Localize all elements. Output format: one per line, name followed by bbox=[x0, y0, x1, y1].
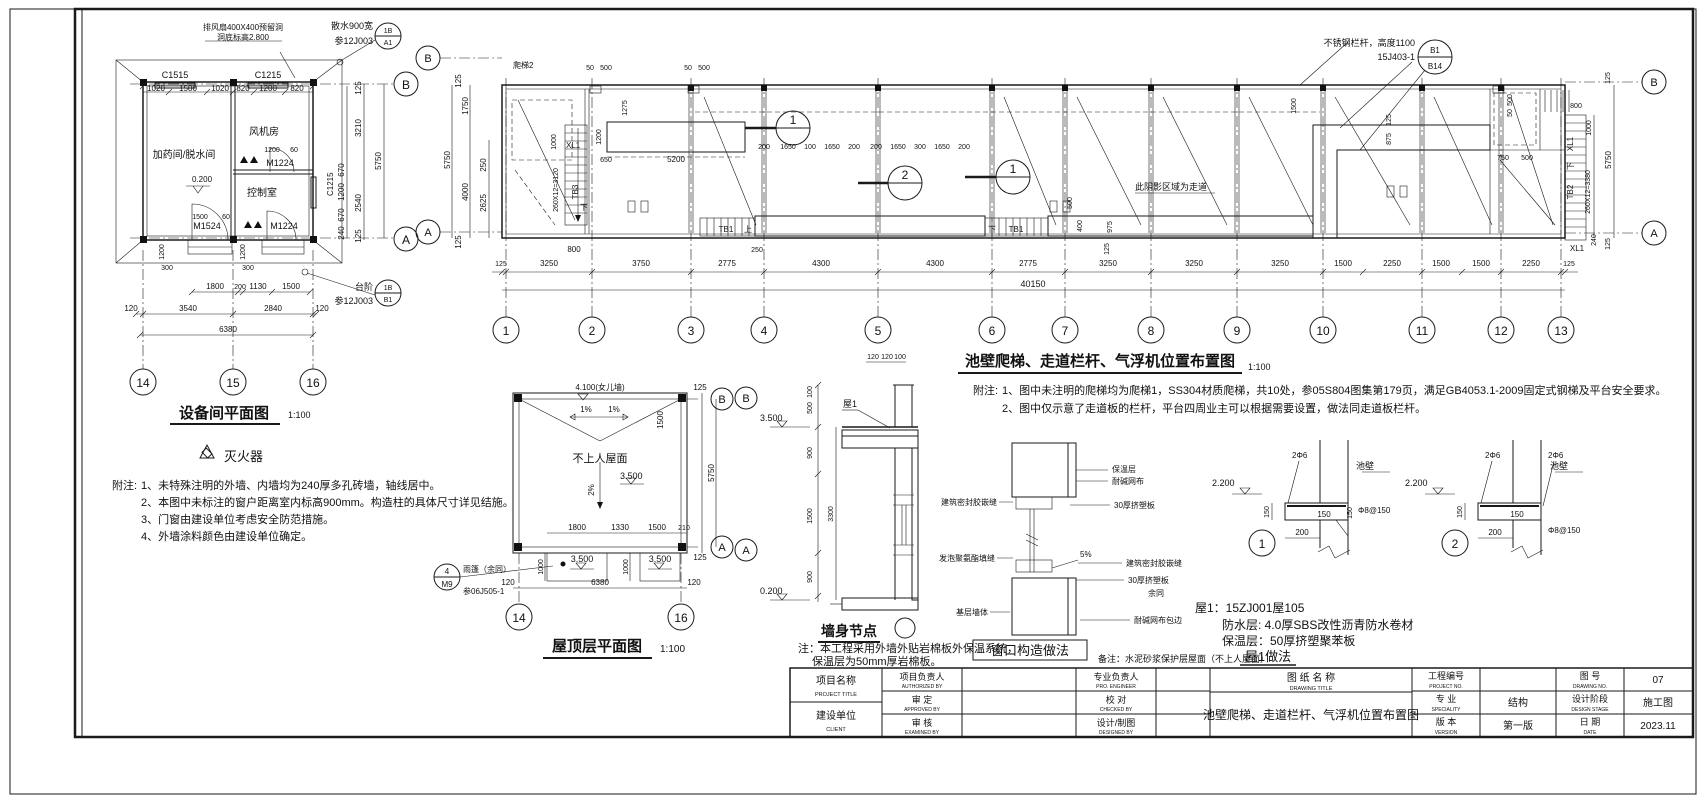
dim: 125 bbox=[354, 229, 363, 243]
part-label: 池壁 bbox=[1550, 460, 1568, 471]
dim: 125 bbox=[454, 235, 463, 249]
elev-label: 0.200 bbox=[760, 586, 783, 596]
detail-marker: 1 bbox=[790, 113, 797, 127]
detail-ref: 4 bbox=[445, 567, 450, 576]
callout: 15J403-1 bbox=[1377, 52, 1415, 62]
dim: 1275 bbox=[622, 100, 629, 116]
room-label: 控制室 bbox=[247, 186, 277, 199]
tb-label: 建设单位 bbox=[816, 709, 856, 722]
tb-value: 结构 bbox=[1508, 696, 1528, 709]
stair-label: XL1 bbox=[1566, 136, 1575, 151]
layer-tag: 屋1 bbox=[843, 399, 857, 409]
elev-label: 3.500 bbox=[760, 413, 783, 423]
dim: 1650 bbox=[780, 144, 796, 151]
view-title: 屋顶层平面图 bbox=[552, 638, 642, 655]
stair-label: 爬梯2 bbox=[513, 60, 534, 70]
tb-label: 设计阶段 bbox=[1572, 693, 1608, 704]
dim: 125 bbox=[1563, 261, 1575, 268]
dim: 650 bbox=[600, 157, 612, 164]
tb-label-en: DESIGNED BY bbox=[1099, 730, 1134, 736]
dim: 1200 bbox=[159, 244, 166, 260]
dim: 240 bbox=[1591, 234, 1598, 246]
window-tag: C1515 bbox=[162, 70, 189, 80]
stair-label: TB1 bbox=[719, 225, 734, 234]
dim: 3210 bbox=[354, 119, 363, 137]
tb-label-en: AUTHORIZED BY bbox=[902, 684, 943, 690]
dim: 1500 bbox=[1472, 259, 1490, 268]
dim: 300 bbox=[914, 144, 926, 151]
dim: 1500 bbox=[1432, 259, 1450, 268]
grid-bubble: 2 bbox=[589, 324, 596, 338]
detail-1: 2.200 2Φ6 池壁 150 150 150 Φ8@150 200 1 bbox=[1212, 440, 1391, 558]
dim: 1000 bbox=[623, 559, 630, 575]
callout: 洞底标高2.800 bbox=[217, 32, 270, 42]
dim: 50 bbox=[684, 65, 692, 72]
dim: 210 bbox=[678, 525, 690, 532]
layer-label: 基层墙体 bbox=[956, 607, 988, 617]
detail-ref: A1 bbox=[384, 40, 393, 47]
door-tag: M1224 bbox=[270, 221, 298, 231]
view-title: 设备间平面图 bbox=[179, 404, 269, 422]
detail-ref: 1B bbox=[384, 28, 393, 35]
dim: 125 bbox=[1605, 72, 1612, 84]
room-label: 风机房 bbox=[249, 125, 279, 138]
note-line: 注：本工程采用外墙外贴岩棉板外保温系统， bbox=[798, 641, 1018, 655]
detail-ref: B1 bbox=[384, 297, 393, 304]
dim: 500 bbox=[1507, 94, 1514, 106]
rebar-label: 2Φ6 bbox=[1292, 451, 1308, 460]
tb-label-en: PRO. ENGINEER bbox=[1096, 684, 1136, 690]
legend-label: 灭火器 bbox=[224, 449, 263, 464]
grid-bubble: 16 bbox=[306, 376, 320, 390]
dim: 1650 bbox=[890, 144, 906, 151]
rebar-label: Φ8@150 bbox=[1358, 506, 1391, 515]
tb-drawing-title: 池壁爬梯、走道栏杆、气浮机位置布置图 bbox=[1203, 707, 1419, 722]
detail-2: 2.200 2Φ6 2Φ6 池壁 150 150 Φ8@150 200 2 bbox=[1405, 440, 1583, 558]
grid-bubble: 13 bbox=[1554, 324, 1568, 338]
dim: 3540 bbox=[179, 304, 197, 313]
dim: 1500 bbox=[1291, 98, 1298, 114]
tb-label-en: APPROVED BY bbox=[904, 707, 941, 713]
tb-label-en: SPECIALITY bbox=[1432, 707, 1462, 713]
roof-label: 不上人屋面 bbox=[573, 452, 628, 465]
dim: 260X12=3380 bbox=[1585, 170, 1592, 214]
stair-label: XL1 bbox=[1570, 244, 1585, 253]
dim: 750 bbox=[1497, 155, 1509, 162]
roof1-spec: 屋1：15ZJ001屋105 防水层: 4.0厚SBS改性沥青防水卷材 保温层：… bbox=[1098, 601, 1413, 665]
view-title: 池壁爬梯、走道栏杆、气浮机位置布置图 bbox=[965, 352, 1235, 370]
grid-bubble: B bbox=[742, 393, 749, 405]
note-line: 保温层为50mm厚岩棉板。 bbox=[812, 654, 942, 668]
detail-ref: B14 bbox=[1428, 62, 1443, 71]
grid-bubble: A bbox=[742, 545, 750, 557]
dim: 150 bbox=[1457, 506, 1464, 518]
rebar-label: Φ8@150 bbox=[1548, 526, 1581, 535]
note-line: 2、本图中未标注的窗户距离室内标高900mm。构造柱的具体尺寸详见结施。 bbox=[141, 495, 514, 509]
elev-label: 2.200 bbox=[1405, 478, 1428, 488]
layer-label: 发泡聚氨酯填缝 bbox=[939, 553, 995, 563]
dim: 975 bbox=[1107, 221, 1114, 233]
slope-label: 5% bbox=[1080, 550, 1092, 559]
layer-label: 余同 bbox=[1148, 588, 1164, 598]
dim: 2775 bbox=[1019, 259, 1037, 268]
note-line: 1、图中未注明的爬梯均为爬梯1，SS304材质爬梯，共10处，参05S804图集… bbox=[1002, 383, 1666, 397]
stair-label: XL1 bbox=[566, 141, 581, 150]
dim: 120 bbox=[501, 578, 515, 587]
dim: 6380 bbox=[219, 325, 237, 334]
dim: 6380 bbox=[591, 578, 609, 587]
grid-bubble: B bbox=[718, 394, 725, 406]
dim: 150 bbox=[1317, 510, 1331, 519]
dim: 200 bbox=[234, 284, 246, 291]
tb-value: 2023.11 bbox=[1640, 721, 1676, 732]
detail-marker: 1 bbox=[1010, 162, 1017, 176]
tb-value: 第一版 bbox=[1503, 719, 1533, 732]
tb-label: 日 期 bbox=[1580, 717, 1601, 727]
tb-value: 07 bbox=[1652, 675, 1664, 686]
dim: 125 bbox=[1605, 238, 1612, 250]
elev-label: 3.500 bbox=[620, 471, 643, 481]
spec-remark: 备注：水泥砂浆保护层屋面（不上人屋面） bbox=[1098, 653, 1269, 664]
elev-label: 2.200 bbox=[1212, 478, 1235, 488]
dim: 1000 bbox=[538, 559, 545, 575]
dim: 100 bbox=[804, 144, 816, 151]
dim: 50 bbox=[1507, 109, 1514, 117]
grid-bubble: 8 bbox=[1148, 324, 1155, 338]
view-scale: 1:100 bbox=[1248, 362, 1271, 372]
dim: 1200 bbox=[259, 84, 277, 93]
window-detail bbox=[973, 443, 1130, 660]
detail-ref: 1B bbox=[384, 285, 393, 292]
callout: 参06J505-1 bbox=[463, 586, 505, 596]
grid-bubble: 6 bbox=[989, 324, 996, 338]
dim: 250 bbox=[479, 158, 488, 172]
grid-bubble: A bbox=[402, 233, 410, 247]
dim: 50 bbox=[586, 65, 594, 72]
dim-total: 40150 bbox=[1020, 279, 1045, 289]
window-tag: C1215 bbox=[326, 172, 335, 196]
dim: 1500 bbox=[179, 84, 197, 93]
drawing-sheet: C1515 C1215 C1215 加药间/脱水间 风机房 控制室 M1224 … bbox=[0, 0, 1706, 803]
dim: 150 bbox=[1347, 507, 1354, 519]
dim: 1500 bbox=[282, 282, 300, 291]
tb-label: 项目负责人 bbox=[899, 671, 944, 682]
dim: 3750 bbox=[632, 259, 650, 268]
grid-bubble: 9 bbox=[1234, 324, 1241, 338]
dim: 125 bbox=[1104, 243, 1111, 255]
stair-label: 上 bbox=[744, 225, 752, 234]
dim: 3250 bbox=[1099, 259, 1117, 268]
rebar-label: 2Φ6 bbox=[1485, 451, 1501, 460]
note-line: 3、门窗由建设单位考虑安全防范措施。 bbox=[141, 512, 334, 526]
wall-section-detail bbox=[735, 362, 918, 638]
dim: 125 bbox=[354, 81, 363, 95]
grid-bubble: A bbox=[1650, 228, 1658, 240]
tb-label-en: PROJECT NO. bbox=[1429, 684, 1463, 690]
dim: 4000 bbox=[461, 183, 470, 201]
dim: 300 bbox=[161, 265, 173, 272]
tb-label-en: DRAWING TITLE bbox=[1290, 686, 1333, 692]
detail-ref: M9 bbox=[441, 580, 453, 589]
grid-bubble: 12 bbox=[1494, 324, 1508, 338]
detail-number: 2 bbox=[1452, 537, 1459, 551]
elev-label: 3.500 bbox=[649, 554, 672, 564]
dim: 2840 bbox=[264, 304, 282, 313]
dim: 125 bbox=[495, 261, 507, 268]
tb-label-en: CHECKED BY bbox=[1100, 707, 1133, 713]
window-tag: C1215 bbox=[255, 70, 282, 80]
door-tag: M1224 bbox=[266, 158, 294, 168]
dim: 1330 bbox=[611, 523, 629, 532]
dim: 120 bbox=[124, 304, 138, 313]
dim: 2625 bbox=[479, 194, 488, 212]
wall-section-text: B A 3.500 0.200 100 500 900 1500 900 330… bbox=[742, 354, 1018, 668]
dim: 500 bbox=[698, 65, 710, 72]
layer-label: 建筑密封胶嵌缝 bbox=[1126, 558, 1182, 568]
callout: 参12J003 bbox=[334, 35, 373, 46]
elev-label: 3.500 bbox=[571, 554, 594, 564]
view-scale: 1:100 bbox=[660, 644, 685, 655]
layer-label: 30厚挤塑板 bbox=[1114, 500, 1155, 510]
dim: 5750 bbox=[443, 151, 452, 169]
pool-layout-text: 1 2 3 4 5 6 7 8 9 10 11 12 13 B A B A 12… bbox=[424, 37, 1666, 415]
notes-label: 附注: bbox=[973, 383, 998, 397]
tb-label: 专业负责人 bbox=[1093, 671, 1138, 682]
grid-bubble: 14 bbox=[512, 611, 526, 625]
tb-label-en: CLIENT bbox=[826, 727, 846, 733]
grid-bubble: 5 bbox=[875, 324, 882, 338]
tb-label: 图 纸 名 称 bbox=[1287, 671, 1335, 684]
dim: 500 bbox=[600, 65, 612, 72]
dim: 120 bbox=[881, 354, 893, 361]
dim: 4300 bbox=[926, 259, 944, 268]
tb-label-en: EXAMINED BY bbox=[905, 730, 940, 736]
tb-value: 施工图 bbox=[1643, 696, 1673, 709]
part-label: 池壁 bbox=[1356, 460, 1374, 471]
dim: 5750 bbox=[707, 464, 716, 482]
grid-bubble: 14 bbox=[136, 376, 150, 390]
dim: 3300 bbox=[828, 506, 835, 522]
dim: 1020 bbox=[147, 84, 165, 93]
tb-label-en: PROJECT TITLE bbox=[815, 692, 857, 698]
callout: 散水900宽 bbox=[331, 20, 373, 31]
dim: 5750 bbox=[1604, 151, 1613, 169]
dim: 120 bbox=[687, 578, 701, 587]
dim: 1800 bbox=[206, 282, 224, 291]
dim: 1650 bbox=[824, 144, 840, 151]
dim: 2250 bbox=[1522, 259, 1540, 268]
dim: 2540 bbox=[354, 194, 363, 212]
grid-bubble: A bbox=[424, 227, 432, 239]
callout: 雨篷（余同） bbox=[463, 564, 511, 574]
dim: 125 bbox=[1386, 114, 1393, 126]
layer-label: 耐碱网布包边 bbox=[1134, 615, 1182, 625]
dim: 5200 bbox=[667, 155, 685, 164]
tb-label: 审 定 bbox=[912, 694, 933, 705]
dim: 200 bbox=[958, 144, 970, 151]
note-line: 2、图中仅示意了走道板的栏杆，平台四周业主可以根据需要设置，做法同走道板栏杆。 bbox=[1002, 401, 1426, 415]
dim: 200 bbox=[1295, 528, 1309, 537]
title-block: 项目名称 PROJECT TITLE 建设单位 CLIENT 项目负责人 AUT… bbox=[790, 668, 1693, 737]
callout: 不锈钢栏杆，高度1100 bbox=[1324, 37, 1415, 48]
grid-bubble: 1 bbox=[503, 324, 510, 338]
dim: 820 bbox=[290, 84, 304, 93]
dim: 670 bbox=[337, 208, 346, 222]
dim: 1500 bbox=[1334, 259, 1352, 268]
dim: 120 bbox=[867, 354, 879, 361]
dim: 100 bbox=[894, 354, 906, 361]
dim: 900 bbox=[807, 447, 814, 459]
view-scale: 1:100 bbox=[288, 410, 311, 420]
grid-bubble: A bbox=[718, 542, 726, 554]
tb-label: 图 号 bbox=[1580, 671, 1601, 681]
dim: 250 bbox=[751, 247, 763, 254]
dim: 2775 bbox=[718, 259, 736, 268]
layer-label: 耐碱网布 bbox=[1112, 476, 1144, 486]
dim: 200 bbox=[870, 144, 882, 151]
grid-bubble: B bbox=[402, 78, 410, 92]
tb-label: 校 对 bbox=[1106, 694, 1127, 705]
dim: 1200 bbox=[264, 147, 280, 154]
dim: 4300 bbox=[812, 259, 830, 268]
rebar-label: 2Φ6 bbox=[1548, 451, 1564, 460]
dim: 500 bbox=[1067, 197, 1074, 209]
dim: 900 bbox=[807, 571, 814, 583]
tb-label: 审 核 bbox=[912, 717, 933, 728]
grid-bubble: 11 bbox=[1416, 324, 1429, 338]
tb-label: 工程编号 bbox=[1428, 670, 1464, 681]
cad-canvas: C1515 C1215 C1215 加药间/脱水间 风机房 控制室 M1224 … bbox=[0, 0, 1706, 803]
dim: 820 bbox=[236, 84, 250, 93]
dim: 200 bbox=[848, 144, 860, 151]
dim: 1800 bbox=[568, 523, 586, 532]
grid-bubble: 7 bbox=[1062, 324, 1069, 338]
stair-label: 下 bbox=[988, 225, 996, 234]
grid-bubble: B bbox=[424, 53, 431, 65]
tb-label-en: DRAWING NO. bbox=[1573, 684, 1607, 690]
grid-bubble: 4 bbox=[761, 324, 768, 338]
dim: 1500 bbox=[648, 523, 666, 532]
dim: 125 bbox=[693, 383, 707, 392]
callout: 台阶 bbox=[355, 281, 373, 292]
view-title: 屋1做法 bbox=[1245, 649, 1291, 664]
dim: 3250 bbox=[540, 259, 558, 268]
stair-label: TB2 bbox=[1566, 184, 1575, 199]
layer-label: 保温层 bbox=[1112, 464, 1136, 474]
stair-label: TB3 bbox=[571, 184, 580, 199]
dim: 1500 bbox=[656, 411, 665, 429]
level-value: 0.200 bbox=[192, 175, 213, 184]
tb-label: 设计/制图 bbox=[1097, 717, 1136, 728]
dim: 670 bbox=[337, 163, 346, 177]
dim: 1200 bbox=[240, 244, 247, 260]
stair-label: 下 bbox=[1566, 162, 1575, 170]
dim: 260X12=3120 bbox=[553, 168, 560, 212]
grid-bubble: B bbox=[1650, 77, 1657, 89]
grid-bubble: 15 bbox=[226, 376, 240, 390]
stair-label: TB1 bbox=[1009, 225, 1024, 234]
dim: 1000 bbox=[1586, 120, 1593, 136]
grid-bubble: 3 bbox=[688, 324, 695, 338]
dim: 1200 bbox=[596, 129, 603, 145]
dim: 400 bbox=[1077, 220, 1084, 232]
dim: 150 bbox=[1510, 510, 1524, 519]
room-label: 加药间/脱水间 bbox=[153, 148, 216, 161]
dim: 800 bbox=[1570, 103, 1582, 110]
dim: 5750 bbox=[374, 152, 383, 170]
dim: 1750 bbox=[461, 97, 470, 115]
elev-label: 4.100(女儿墙) bbox=[575, 382, 625, 392]
dim: 500 bbox=[1521, 155, 1533, 162]
dim: 2250 bbox=[1383, 259, 1401, 268]
dim: 1020 bbox=[211, 84, 229, 93]
slope-label: 1% bbox=[608, 405, 620, 414]
dim: 60 bbox=[222, 214, 230, 221]
slope-label: 1% bbox=[580, 405, 592, 414]
dim: 1130 bbox=[249, 282, 267, 291]
dim: 200 bbox=[758, 144, 770, 151]
layer-label: 建筑密封胶嵌缝 bbox=[941, 497, 997, 507]
dim: 1200 bbox=[337, 183, 346, 201]
window-detail-text: 建筑密封胶嵌缝 发泡聚氨酯填缝 基层墙体 保温层 耐碱网布 30厚挤塑板 5% … bbox=[939, 464, 1182, 658]
dim: 3250 bbox=[1185, 259, 1203, 268]
spec-line: 防水层: 4.0厚SBS改性沥青防水卷材 bbox=[1222, 617, 1413, 632]
dim: 500 bbox=[807, 402, 814, 414]
slope-label: 2% bbox=[587, 484, 596, 496]
tb-label: 项目名称 bbox=[816, 674, 856, 687]
tb-label: 专 业 bbox=[1436, 693, 1457, 704]
tb-label-en: DATE bbox=[1584, 730, 1598, 736]
tb-label-en: VERSION bbox=[1435, 730, 1458, 736]
grid-bubble: 16 bbox=[674, 611, 688, 625]
dim: 125 bbox=[693, 553, 707, 562]
layer-label: 30厚挤塑板 bbox=[1128, 575, 1169, 585]
dim: 60 bbox=[290, 147, 298, 154]
walkway-label: 此阴影区域为走道 bbox=[1135, 181, 1207, 192]
dim: 300 bbox=[242, 265, 254, 272]
tb-label: 版 本 bbox=[1436, 716, 1457, 727]
detail-number: 1 bbox=[1259, 537, 1266, 551]
dim: 200 bbox=[1488, 528, 1502, 537]
dim: 1650 bbox=[934, 144, 950, 151]
door-tag: M1524 bbox=[193, 221, 221, 231]
callout: 排风扇400X400预留洞 bbox=[203, 22, 283, 32]
note-line: 4、外墙涂料颜色由建设单位确定。 bbox=[141, 529, 312, 543]
spec-line: 屋1：15ZJ001屋105 bbox=[1195, 601, 1305, 615]
detail-ref: B1 bbox=[1430, 46, 1440, 55]
dim: 120 bbox=[315, 304, 329, 313]
dim: 100 bbox=[807, 386, 814, 398]
view-title: 墙身节点 bbox=[821, 623, 877, 639]
dim: 3250 bbox=[1271, 259, 1289, 268]
stair-label: 下 bbox=[580, 203, 588, 212]
view-title: 窗口构造做法 bbox=[991, 643, 1069, 658]
note-line: 1、未特殊注明的外墙、内墙均为240厚多孔砖墙，轴线居中。 bbox=[141, 478, 440, 492]
dim: 1500 bbox=[807, 508, 814, 524]
dim: 875 bbox=[1386, 133, 1393, 145]
spec-line: 保温层：50厚挤塑聚苯板 bbox=[1222, 633, 1355, 648]
roof-plan-text: 4.100(女儿墙) 1% 1% 不上人屋面 2% 3.500 3.500 3.… bbox=[441, 382, 726, 658]
dim: 800 bbox=[567, 245, 581, 254]
grid-bubble: 10 bbox=[1316, 324, 1330, 338]
callout: 参12J003 bbox=[334, 295, 373, 306]
dim: 1500 bbox=[192, 214, 208, 221]
notes-label: 附注: bbox=[112, 478, 137, 492]
tb-label-en: DESIGN STAGE bbox=[1571, 707, 1609, 713]
dim: 125 bbox=[454, 74, 463, 88]
dim: 150 bbox=[1264, 506, 1271, 518]
detail-marker: 2 bbox=[902, 168, 909, 182]
